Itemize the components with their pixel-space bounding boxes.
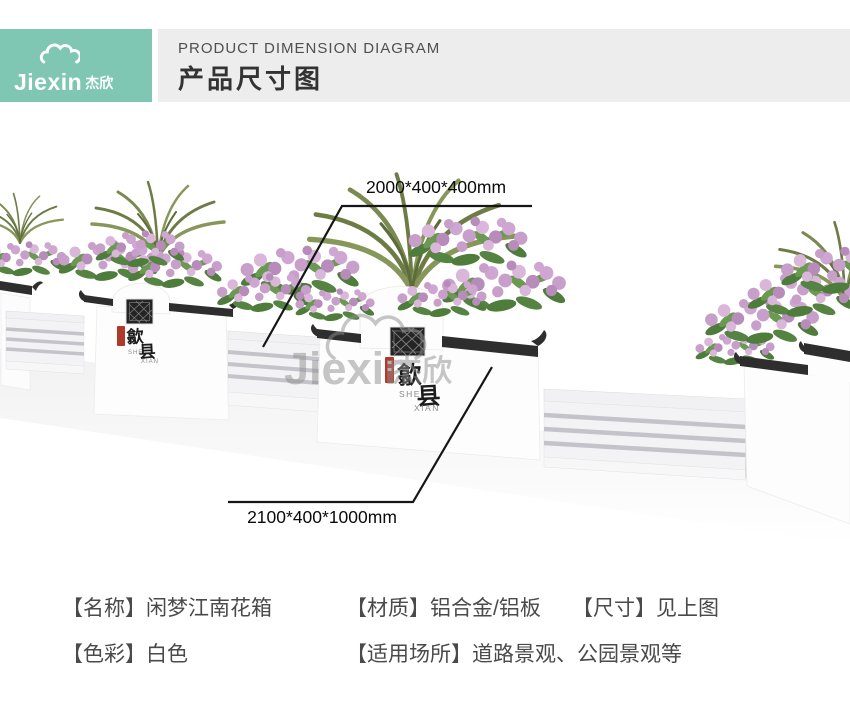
brand-logo: Jiexin杰欣	[0, 29, 152, 102]
dimension-label-bottom: 2100*400*1000mm	[226, 507, 418, 528]
page-title-zh: 产品尺寸图	[178, 59, 323, 96]
header: Jiexin杰欣 PRODUCT DIMENSION DIAGRAM 产品尺寸图	[0, 29, 850, 102]
bench-left	[6, 311, 84, 374]
spec-name: 【名称】闲梦江南花箱	[62, 592, 272, 622]
brand-name-en: Jiexin	[14, 69, 82, 95]
cloud-icon	[38, 43, 80, 65]
brand-name-zh: 杰欣	[85, 75, 113, 91]
spec-usage: 【适用场所】道路景观、公园景观等	[346, 638, 682, 668]
brand-name: Jiexin杰欣	[14, 69, 113, 96]
spec-color: 【色彩】白色	[62, 638, 188, 668]
flower-cluster	[239, 246, 361, 297]
romaji-xian: XIAN	[141, 359, 159, 365]
page: 歙 县 SHE XIAN	[0, 0, 850, 708]
bench-right	[544, 389, 746, 480]
page-title-en: PRODUCT DIMENSION DIAGRAM	[178, 40, 440, 57]
lattice-window	[126, 299, 153, 324]
spec-size: 【尺寸】见上图	[572, 592, 719, 622]
romaji-she: SHE	[128, 350, 143, 356]
watermark-text-zh: 杰欣	[392, 355, 452, 388]
title-band: PRODUCT DIMENSION DIAGRAM 产品尺寸图	[158, 29, 850, 102]
spec-material: 【材质】铝合金/铝板	[346, 592, 541, 622]
red-seal	[117, 326, 125, 346]
romaji-xian: XIAN	[414, 403, 440, 413]
dimension-label-top: 2000*400*400mm	[338, 177, 534, 198]
